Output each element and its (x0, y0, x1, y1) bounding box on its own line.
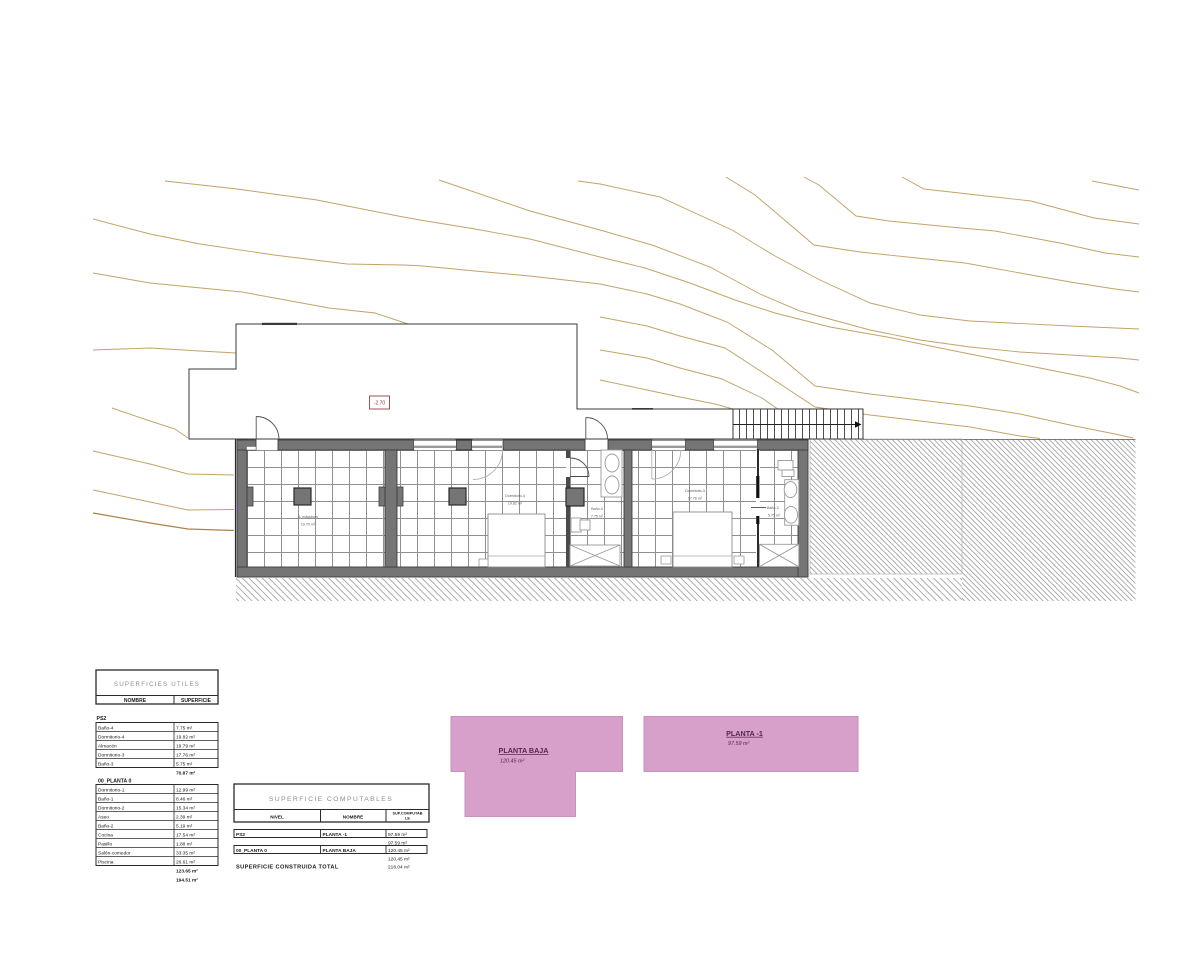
svg-text:17.76 m²: 17.76 m² (688, 497, 703, 501)
svg-text:Dormitorio-4: Dormitorio-4 (98, 735, 125, 741)
svg-text:5.75 m²: 5.75 m² (176, 762, 193, 768)
svg-text:-2.70: -2.70 (374, 401, 386, 407)
svg-text:PS2: PS2 (97, 716, 107, 722)
svg-text:Dormitorio-3: Dormitorio-3 (98, 753, 125, 759)
svg-text:PLANTA -1: PLANTA -1 (726, 729, 763, 738)
svg-text:5.19 m²: 5.19 m² (176, 824, 193, 830)
svg-text:15.34 m²: 15.34 m² (176, 806, 195, 812)
svg-text:Dormitorio-1: Dormitorio-1 (98, 788, 125, 794)
svg-text:PLANTA BAJA: PLANTA BAJA (499, 746, 549, 755)
svg-text:Aseo: Aseo (98, 815, 109, 821)
svg-text:00_PLANTA 0: 00_PLANTA 0 (236, 848, 267, 854)
svg-text:SUP.COMPUTAB: SUP.COMPUTAB (392, 812, 422, 816)
svg-text:Salón-comedor: Salón-comedor (98, 851, 131, 857)
svg-text:A. máquinas: A. máquinas (298, 515, 318, 519)
svg-text:19.79 m²: 19.79 m² (301, 523, 316, 527)
svg-text:97.59 m²: 97.59 m² (388, 832, 407, 838)
svg-text:Baño-4: Baño-4 (591, 507, 603, 511)
svg-text:PS2: PS2 (236, 832, 245, 838)
svg-text:Baño-4: Baño-4 (98, 726, 114, 732)
svg-text:33.35 m²: 33.35 m² (176, 851, 195, 857)
svg-text:Almacén: Almacén (98, 744, 117, 750)
svg-text:SUPERFICIES UTILES: SUPERFICIES UTILES (114, 681, 200, 688)
svg-text:Baño-1: Baño-1 (98, 797, 114, 803)
svg-text:19.82 m²: 19.82 m² (176, 735, 195, 741)
svg-text:194.51 m²: 194.51 m² (176, 878, 198, 884)
svg-text:Baño-3: Baño-3 (767, 506, 779, 510)
svg-text:70.87 m²: 70.87 m² (176, 771, 196, 777)
svg-text:123.65 m²: 123.65 m² (176, 869, 198, 875)
svg-text:218.04 m²: 218.04 m² (388, 865, 410, 871)
svg-text:SUPERFICIE COMPUTABLES: SUPERFICIE COMPUTABLES (269, 796, 393, 803)
svg-text:7.75 m²: 7.75 m² (176, 726, 193, 732)
svg-text:Pasillo: Pasillo (98, 842, 112, 848)
svg-text:120.45 m²: 120.45 m² (388, 857, 410, 863)
svg-text:17.54 m²: 17.54 m² (176, 833, 195, 839)
svg-text:NIVEL: NIVEL (270, 815, 284, 820)
svg-text:PLANTA -1: PLANTA -1 (323, 832, 348, 838)
svg-text:26.61 m²: 26.61 m² (176, 860, 195, 866)
svg-text:SUPERFICIE CONSTRUIDA TOTAL: SUPERFICIE CONSTRUIDA TOTAL (236, 865, 339, 871)
svg-text:1.88 m²: 1.88 m² (176, 842, 193, 848)
svg-text:2.39 m²: 2.39 m² (176, 815, 193, 821)
svg-text:NOMBRE: NOMBRE (124, 698, 147, 704)
svg-text:Dormitorio-3: Dormitorio-3 (685, 489, 705, 493)
svg-text:00_PLANTA 0: 00_PLANTA 0 (98, 779, 132, 785)
svg-text:Piscina: Piscina (98, 860, 114, 866)
svg-text:7.75 m²: 7.75 m² (591, 515, 604, 519)
svg-text:19.79 m²: 19.79 m² (176, 744, 195, 750)
svg-text:97.59 m²: 97.59 m² (728, 741, 749, 747)
svg-text:120.45 m²: 120.45 m² (500, 759, 524, 765)
svg-text:120.45 m²: 120.45 m² (388, 848, 410, 854)
svg-text:LE: LE (405, 817, 410, 821)
svg-text:Dormitorio-2: Dormitorio-2 (98, 806, 125, 812)
svg-text:12.99 m²: 12.99 m² (176, 788, 195, 794)
svg-text:5.75 m²: 5.75 m² (768, 514, 781, 518)
svg-text:Baño-2: Baño-2 (98, 824, 114, 830)
svg-text:NOMBRE: NOMBRE (343, 815, 363, 820)
svg-text:PLANTA BAJA: PLANTA BAJA (323, 848, 357, 854)
svg-text:SUPERFICIE: SUPERFICIE (181, 698, 212, 704)
svg-text:17.76 m²: 17.76 m² (176, 753, 195, 759)
svg-text:Cocina: Cocina (98, 833, 113, 839)
svg-text:Dormitorio-4: Dormitorio-4 (505, 494, 525, 498)
svg-text:8.46 m²: 8.46 m² (176, 797, 193, 803)
svg-text:19.82 m²: 19.82 m² (508, 502, 523, 506)
svg-text:Baño-3: Baño-3 (98, 762, 114, 768)
